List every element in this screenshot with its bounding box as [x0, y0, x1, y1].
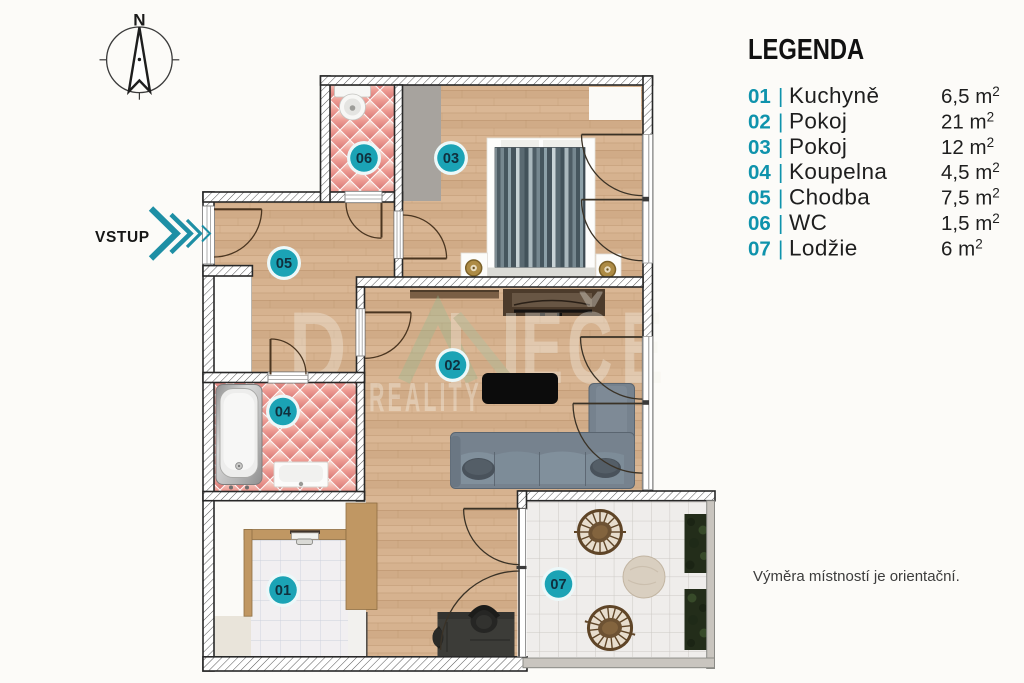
- svg-text:VSTUP: VSTUP: [95, 229, 150, 246]
- svg-text:04: 04: [275, 405, 291, 421]
- svg-text:Výměra místností je orientační: Výměra místností je orientační.: [753, 568, 960, 585]
- svg-text:|: |: [778, 237, 783, 260]
- svg-text:D: D: [289, 292, 346, 406]
- svg-text:01: 01: [748, 85, 771, 108]
- svg-text:Kuchyně: Kuchyně: [789, 83, 879, 108]
- svg-text:07: 07: [550, 577, 566, 593]
- svg-text:Pokoj: Pokoj: [789, 108, 847, 133]
- svg-text:02: 02: [444, 358, 460, 374]
- svg-text:|: |: [778, 161, 783, 184]
- svg-text:|: |: [778, 187, 783, 210]
- svg-text:02: 02: [748, 110, 771, 133]
- svg-text:06: 06: [356, 151, 372, 167]
- svg-text:6,5 m2: 6,5 m2: [941, 84, 1000, 108]
- svg-text:03: 03: [748, 136, 771, 159]
- svg-text:03: 03: [443, 151, 459, 167]
- svg-text:|: |: [778, 85, 783, 108]
- svg-text:Chodba: Chodba: [789, 185, 870, 210]
- svg-text:1,5 m2: 1,5 m2: [941, 211, 1000, 235]
- svg-text:01: 01: [275, 583, 291, 599]
- svg-text:21 m2: 21 m2: [941, 109, 994, 133]
- svg-text:WC: WC: [789, 210, 827, 235]
- svg-text:7,5 m2: 7,5 m2: [941, 186, 1000, 210]
- svg-text:Pokoj: Pokoj: [789, 134, 847, 159]
- svg-text:04: 04: [748, 161, 771, 184]
- svg-text:N: N: [133, 11, 145, 30]
- svg-text:|: |: [778, 136, 783, 159]
- svg-text:4,5 m2: 4,5 m2: [941, 160, 1000, 184]
- svg-text:12 m2: 12 m2: [941, 135, 994, 159]
- svg-text:05: 05: [748, 187, 771, 210]
- svg-text:|: |: [778, 110, 783, 133]
- svg-text:05: 05: [276, 256, 292, 272]
- svg-text:LEGENDA: LEGENDA: [748, 33, 864, 66]
- svg-text:REALITY: REALITY: [369, 373, 482, 419]
- svg-text:07: 07: [748, 237, 771, 260]
- svg-text:Koupelna: Koupelna: [789, 159, 887, 184]
- svg-text:Lodžie: Lodžie: [789, 235, 858, 260]
- svg-text:|: |: [778, 212, 783, 235]
- svg-text:06: 06: [748, 212, 771, 235]
